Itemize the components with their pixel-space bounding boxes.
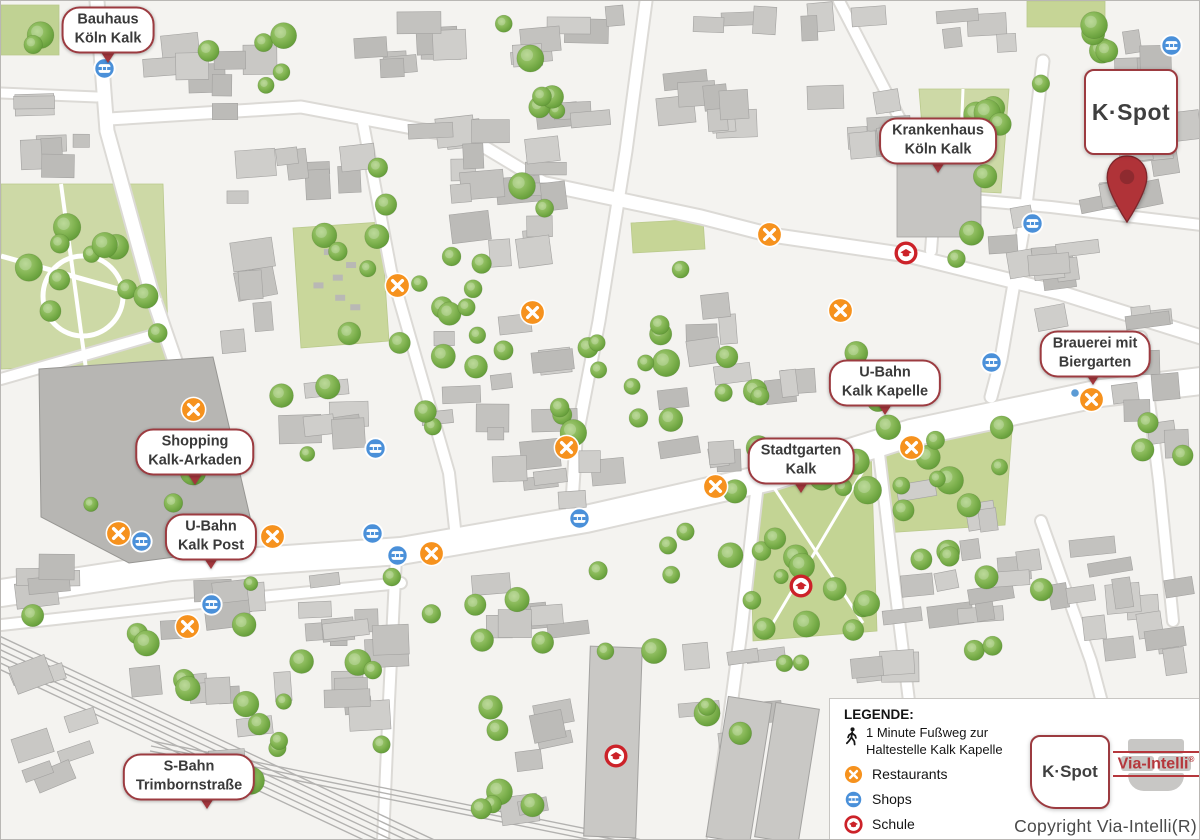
legend-title: LEGENDE: xyxy=(844,707,1200,722)
shop-icon xyxy=(844,790,863,809)
registered-mark: ® xyxy=(1188,755,1194,764)
restaurant-icon xyxy=(844,765,863,784)
via-intelli-logo: Via-Intelli® xyxy=(1113,737,1199,801)
legend-walk-line1: 1 Minute Fußweg zur xyxy=(866,725,1003,742)
legend-panel: LEGENDE: 1 Minute Fußweg zur Haltestelle… xyxy=(829,698,1200,840)
kspot-logo-text: K·Spot xyxy=(1042,762,1098,782)
kspot-location-pin[interactable] xyxy=(1105,153,1149,225)
kspot-logo-text: K·Spot xyxy=(1092,99,1170,126)
legend-item-label: Schule xyxy=(872,816,915,832)
legend-walk-line2: Haltestelle Kalk Kapelle xyxy=(866,742,1003,759)
copyright-text: Copyright Via-Intelli(R) xyxy=(1014,816,1197,837)
walking-person-icon xyxy=(844,726,860,747)
map-page: BauhausKöln KalkKrankenhausKöln KalkBrau… xyxy=(0,0,1200,840)
kspot-logo-box: K·Spot xyxy=(1084,69,1178,155)
kspot-logo-bottom: K·Spot xyxy=(1030,735,1110,809)
via-intelli-wordmark: Via-Intelli® xyxy=(1113,751,1199,777)
legend-item-label: Restaurants xyxy=(872,766,947,782)
school-icon xyxy=(844,815,863,834)
legend-item-label: Shops xyxy=(872,791,912,807)
